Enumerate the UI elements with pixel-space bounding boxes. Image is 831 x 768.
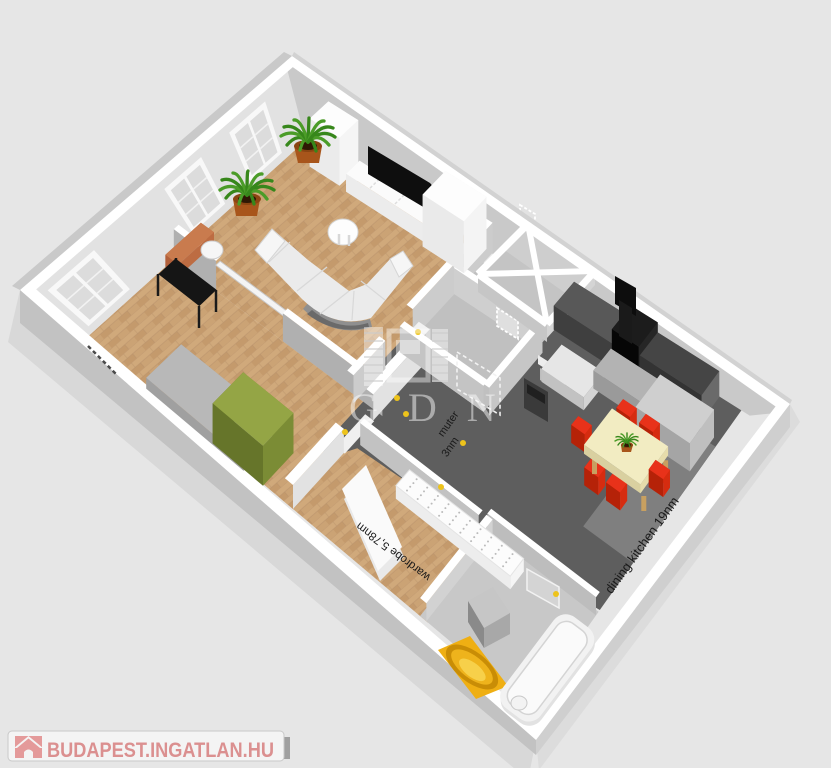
svg-text:GDN: GDN [349, 385, 526, 430]
svg-text:BUDAPEST.INGATLAN.HU: BUDAPEST.INGATLAN.HU [47, 739, 274, 762]
